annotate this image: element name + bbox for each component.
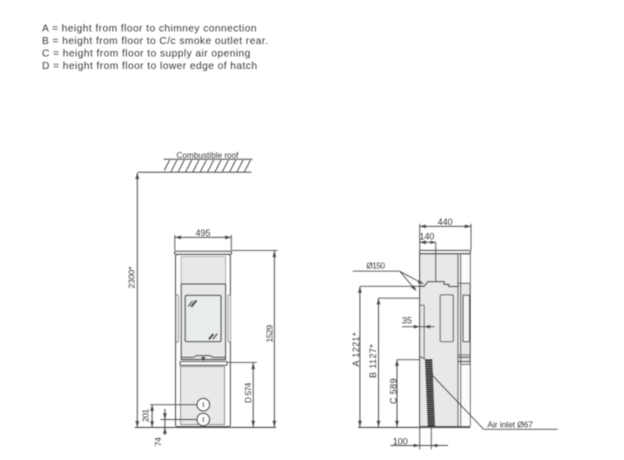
svg-text:201: 201 (141, 409, 151, 422)
svg-text:C 589: C 589 (388, 378, 398, 404)
svg-text:B 1127*: B 1127* (368, 344, 378, 378)
svg-text:B = height from floor to C/c s: B = height from floor to C/c smoke outle… (42, 36, 268, 47)
svg-text:140: 140 (419, 232, 434, 242)
svg-text:Combustible roof: Combustible roof (177, 151, 240, 160)
svg-text:1529: 1529 (264, 325, 274, 343)
svg-text:440: 440 (438, 217, 453, 227)
svg-text:74: 74 (153, 437, 163, 446)
svg-text:35: 35 (402, 316, 412, 326)
svg-text:A 1221*: A 1221* (351, 332, 361, 366)
svg-text:100: 100 (393, 436, 408, 446)
svg-text:2300*: 2300* (127, 266, 137, 289)
svg-text:Ø150: Ø150 (366, 261, 385, 270)
svg-text:Air inlet Ø67: Air inlet Ø67 (487, 419, 533, 429)
svg-text:D = height from floor to lower: D = height from floor to lower edge of h… (42, 61, 257, 72)
svg-text:D 574: D 574 (243, 382, 253, 403)
svg-text:A = height from floor to chimn: A = height from floor to chimney connect… (42, 23, 257, 34)
svg-text:495: 495 (195, 228, 210, 238)
svg-text:C = height from floor to suppl: C = height from floor to supply air open… (42, 48, 251, 59)
